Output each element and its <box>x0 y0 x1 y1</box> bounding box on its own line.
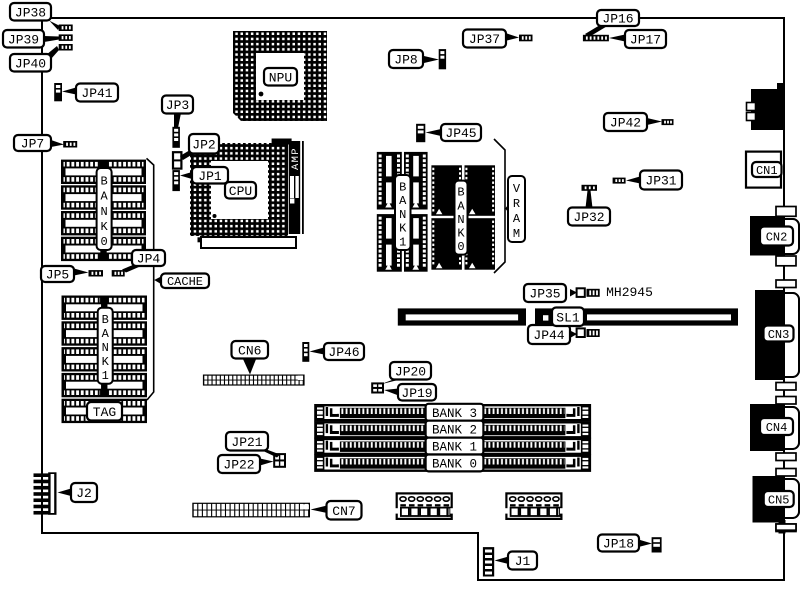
svg-text:CN4: CN4 <box>766 421 788 435</box>
svg-text:JP42: JP42 <box>610 116 641 131</box>
svg-text:JP4: JP4 <box>137 252 161 267</box>
svg-text:JP35: JP35 <box>529 287 560 302</box>
svg-text:CPU: CPU <box>229 184 252 199</box>
svg-text:JP17: JP17 <box>630 33 661 48</box>
svg-text:BANK 2: BANK 2 <box>432 424 477 438</box>
svg-text:K: K <box>102 355 110 369</box>
svg-text:CN3: CN3 <box>768 328 790 342</box>
svg-text:A: A <box>102 327 110 341</box>
svg-text:SL1: SL1 <box>556 310 580 325</box>
svg-text:B: B <box>100 174 107 188</box>
svg-text:JP31: JP31 <box>645 174 676 189</box>
svg-text:JP46: JP46 <box>328 345 359 360</box>
svg-text:TAG: TAG <box>93 405 116 420</box>
svg-text:JP2: JP2 <box>192 137 215 152</box>
svg-text:JP40: JP40 <box>15 56 46 71</box>
svg-text:JP16: JP16 <box>602 12 633 27</box>
svg-text:AMP: AMP <box>290 147 302 170</box>
svg-text:B: B <box>399 180 406 194</box>
svg-text:JP39: JP39 <box>8 32 39 47</box>
svg-text:A: A <box>457 199 465 213</box>
svg-text:0: 0 <box>100 235 107 249</box>
svg-text:JP44: JP44 <box>533 328 564 343</box>
svg-text:JP3: JP3 <box>166 98 189 113</box>
svg-text:CN7: CN7 <box>332 504 355 519</box>
svg-text:JP32: JP32 <box>573 210 604 225</box>
svg-text:K: K <box>399 222 407 236</box>
svg-text:NPU: NPU <box>269 70 292 85</box>
svg-text:JP1: JP1 <box>198 169 222 184</box>
svg-text:JP37: JP37 <box>469 32 500 47</box>
svg-text:CN2: CN2 <box>766 230 788 244</box>
svg-text:JP41: JP41 <box>81 86 112 101</box>
svg-text:K: K <box>100 220 108 234</box>
svg-text:N: N <box>100 205 107 219</box>
svg-text:JP8: JP8 <box>394 53 417 68</box>
svg-text:JP45: JP45 <box>445 126 476 141</box>
svg-text:JP19: JP19 <box>401 386 432 401</box>
svg-text:JP20: JP20 <box>395 364 426 379</box>
svg-text:JP38: JP38 <box>15 5 46 20</box>
svg-text:JP5: JP5 <box>46 268 69 283</box>
svg-text:A: A <box>399 194 407 208</box>
svg-text:BANK 3: BANK 3 <box>432 407 477 421</box>
svg-text:CN5: CN5 <box>768 493 790 507</box>
svg-text:A: A <box>513 212 521 226</box>
svg-text:J2: J2 <box>76 486 92 501</box>
svg-text:M: M <box>513 227 520 241</box>
svg-text:JP18: JP18 <box>603 537 634 552</box>
svg-text:B: B <box>457 186 464 200</box>
svg-text:CN1: CN1 <box>756 164 778 178</box>
svg-text:J1: J1 <box>515 554 531 569</box>
svg-text:N: N <box>457 213 464 227</box>
svg-text:A: A <box>100 190 108 204</box>
svg-text:JP21: JP21 <box>231 435 262 450</box>
svg-text:BANK 1: BANK 1 <box>432 441 477 455</box>
svg-text:CN6: CN6 <box>238 343 261 358</box>
svg-text:CACHE: CACHE <box>167 275 203 289</box>
svg-text:1: 1 <box>399 235 406 249</box>
svg-text:N: N <box>102 341 109 355</box>
svg-text:1: 1 <box>102 369 109 383</box>
svg-text:MH2945: MH2945 <box>606 285 653 300</box>
svg-text:V: V <box>513 182 521 196</box>
svg-text:JP7: JP7 <box>21 137 44 152</box>
svg-text:N: N <box>399 208 406 222</box>
svg-text:BANK 0: BANK 0 <box>432 457 477 471</box>
svg-text:K: K <box>457 227 465 241</box>
svg-text:JP22: JP22 <box>223 458 254 473</box>
svg-text:R: R <box>513 197 520 211</box>
svg-text:0: 0 <box>457 240 464 254</box>
svg-text:B: B <box>102 313 109 327</box>
